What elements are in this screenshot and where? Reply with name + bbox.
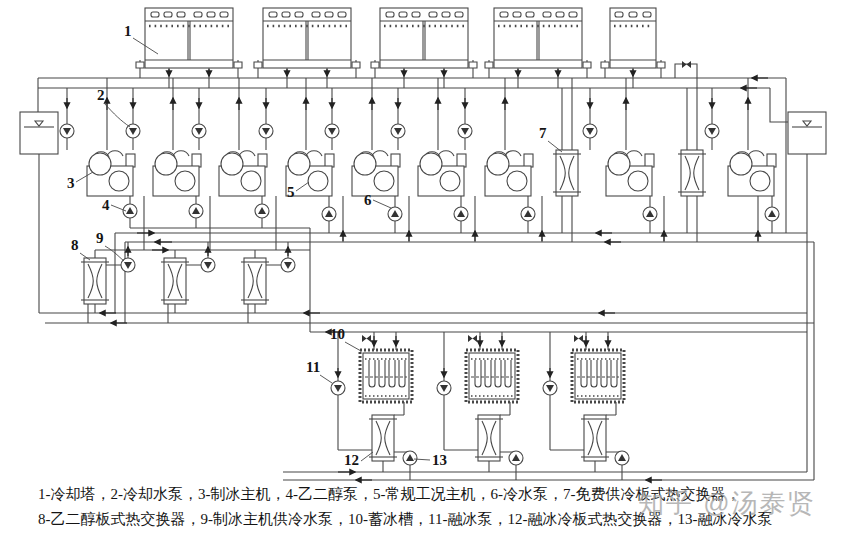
- ice-melting-pump: [543, 381, 557, 395]
- watermark: 知乎 @汤泰贤: [638, 486, 816, 521]
- chilled-water-mains: [115, 154, 814, 480]
- chilled-water-pump: [454, 207, 468, 221]
- schematic-svg: 1 2 3 4 5 6 7 8 9 10 11 12 13: [0, 0, 860, 537]
- ice-making-chiller: [219, 151, 267, 196]
- ice-storage-hvac-schematic: 1 2 3 4 5 6 7 8 9 10 11 12 13 1-冷却塔，2-冷却…: [0, 0, 860, 537]
- regular-chiller: [352, 151, 400, 196]
- svg-text:6: 6: [364, 192, 372, 208]
- cooling-water-pump: [458, 124, 472, 138]
- expansion-tank-left: [20, 112, 58, 154]
- melting-heat-exchangers: [369, 415, 629, 465]
- svg-text:12: 12: [344, 452, 359, 468]
- bypass-pipe: [675, 64, 697, 78]
- cooling-water-pump: [192, 124, 206, 138]
- ice-storage-tank: [360, 350, 412, 402]
- ice-storage-tank: [572, 350, 624, 402]
- melting-chw-pump: [509, 451, 523, 465]
- svg-text:11: 11: [306, 359, 320, 375]
- svg-text:3: 3: [67, 175, 75, 191]
- callout-2: 2: [97, 87, 130, 127]
- melting-plate-hx: [369, 415, 397, 461]
- ice-making-chiller: [87, 151, 135, 196]
- glycol-pump: [255, 204, 269, 218]
- cooling-tower: [494, 8, 582, 68]
- chilled-water-pump: [388, 207, 402, 221]
- glycol-plate-hx: [161, 258, 189, 304]
- tank-inlet-valve-icon: [468, 335, 477, 342]
- tank-inlet-valve-icon: [362, 335, 371, 342]
- svg-text:5: 5: [287, 184, 295, 200]
- cooling-water-pump: [705, 124, 719, 138]
- cooling-water-pumps: [60, 124, 719, 138]
- svg-text:1: 1: [124, 23, 132, 39]
- svg-text:13: 13: [432, 452, 447, 468]
- cooling-water-pump: [60, 124, 74, 138]
- regular-chiller: [606, 151, 654, 196]
- callout-12: 12: [344, 452, 373, 468]
- bypass-valve-icon: [682, 61, 691, 68]
- ice-chiller-chw-pump: [201, 258, 215, 272]
- svg-text:4: 4: [102, 197, 110, 213]
- cooling-water-pump: [583, 124, 597, 138]
- cooling-towers: [145, 8, 656, 68]
- cooling-tower-single-cell: [610, 8, 656, 68]
- callout-7: 7: [539, 125, 562, 152]
- regular-chiller: [728, 151, 776, 196]
- glycol-plate-hx: [81, 258, 109, 304]
- ice-storage-tank: [466, 350, 518, 402]
- glycol-pumps: [123, 204, 269, 218]
- svg-text:9: 9: [96, 230, 104, 246]
- chilled-water-pump: [765, 207, 779, 221]
- chilled-water-pumps: [322, 207, 779, 221]
- ice-chiller-chw-pump: [281, 258, 295, 272]
- ice-storage-tanks: [331, 335, 624, 402]
- ice-melting-pump: [331, 381, 345, 395]
- callout-8: 8: [71, 237, 90, 260]
- callout-11: 11: [306, 359, 332, 383]
- cooling-tower: [263, 8, 351, 68]
- chilled-water-pump: [643, 207, 657, 221]
- cooling-water-pump: [325, 124, 339, 138]
- ice-making-chiller: [153, 151, 201, 196]
- regular-chiller: [418, 151, 466, 196]
- melting-plate-hx: [475, 415, 503, 461]
- condenser-water-headers: [38, 64, 788, 233]
- melting-chw-pump: [615, 451, 629, 465]
- melting-plate-hx: [581, 415, 609, 461]
- glycol-plate-hx: [241, 258, 269, 304]
- svg-text:10: 10: [330, 326, 345, 342]
- ice-melting-pump: [437, 381, 451, 395]
- condenser-riser-pipes: [67, 78, 748, 150]
- svg-text:7: 7: [539, 125, 547, 141]
- bottom-headers: [283, 472, 814, 480]
- svg-text:8: 8: [71, 237, 79, 253]
- svg-text:2: 2: [97, 87, 105, 103]
- callout-13: 13: [414, 452, 447, 468]
- free-cooling-plate-hx: [678, 150, 706, 196]
- callout-10: 10: [330, 326, 361, 351]
- cooling-water-pump: [391, 124, 405, 138]
- tank-inlet-valve-icon: [574, 335, 583, 342]
- melting-chw-pump: [403, 451, 417, 465]
- regular-chiller: [485, 151, 533, 196]
- cooling-water-pump: [259, 124, 273, 138]
- glycol-pump: [189, 204, 203, 218]
- cooling-tower: [380, 8, 468, 68]
- free-cooling-plate-hx: [553, 150, 581, 196]
- expansion-tank-right: [788, 112, 826, 154]
- cooling-tower: [145, 8, 233, 68]
- chillers: [87, 151, 776, 196]
- chilled-water-pump: [322, 207, 336, 221]
- callout-9: 9: [96, 230, 124, 261]
- callout-4: 4: [102, 197, 126, 213]
- chilled-water-pump: [521, 207, 535, 221]
